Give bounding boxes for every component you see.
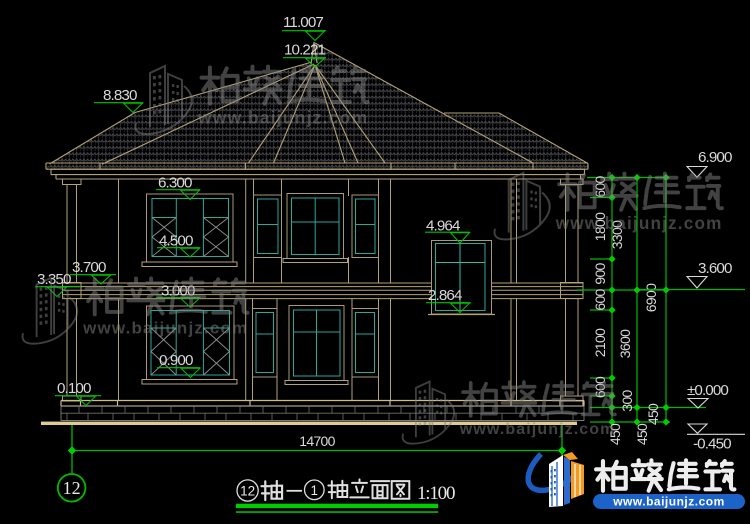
svg-text:14700: 14700: [299, 433, 335, 449]
svg-text:6.900: 6.900: [698, 149, 732, 166]
svg-text:0.900: 0.900: [159, 352, 193, 369]
svg-text:www.baijunjz.com: www.baijunjz.com: [612, 495, 725, 509]
svg-text:0.100: 0.100: [57, 380, 91, 397]
svg-text:3.600: 3.600: [698, 260, 732, 277]
svg-text:2.864: 2.864: [428, 287, 462, 304]
svg-text:450: 450: [645, 403, 661, 425]
svg-text:450: 450: [634, 423, 650, 445]
svg-text:6.300: 6.300: [158, 175, 192, 192]
svg-text:±0.000: ±0.000: [687, 382, 728, 399]
svg-text:10.221: 10.221: [284, 42, 326, 59]
svg-text:600: 600: [592, 288, 608, 310]
svg-text:-0.450: -0.450: [693, 436, 731, 453]
svg-text:8.830: 8.830: [103, 87, 137, 104]
svg-text:300: 300: [619, 389, 635, 411]
svg-text:2100: 2100: [592, 328, 608, 357]
svg-text:900: 900: [592, 262, 608, 284]
svg-text:1: 1: [311, 483, 319, 498]
svg-text:12: 12: [240, 484, 255, 499]
svg-text:12: 12: [63, 478, 81, 498]
svg-text:11.007: 11.007: [283, 14, 323, 31]
svg-text:3600: 3600: [617, 329, 633, 358]
svg-text:1:100: 1:100: [417, 483, 455, 504]
svg-text:3.700: 3.700: [72, 259, 106, 276]
svg-text:4.500: 4.500: [159, 233, 193, 250]
svg-text:6900: 6900: [643, 283, 659, 312]
